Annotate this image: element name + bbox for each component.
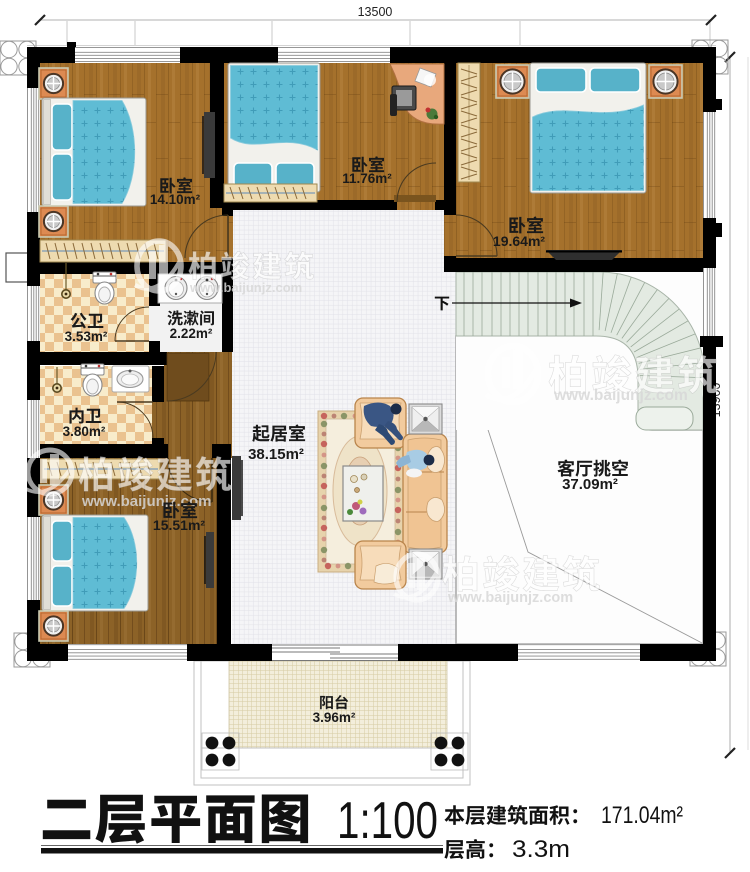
svg-text:3.53m²: 3.53m² [65, 329, 108, 344]
svg-text:11.76m²: 11.76m² [342, 171, 392, 186]
svg-text:www.baijunjz.com: www.baijunjz.com [553, 387, 688, 404]
svg-text:3.3m: 3.3m [512, 836, 570, 863]
svg-text:3.96m²: 3.96m² [313, 710, 356, 725]
svg-text:19.64m²: 19.64m² [493, 233, 545, 249]
svg-text:14.10m²: 14.10m² [150, 192, 201, 207]
svg-text:38.15m²: 38.15m² [248, 446, 304, 463]
svg-text:171.04m²: 171.04m² [601, 802, 683, 829]
svg-text:37.09m²: 37.09m² [562, 476, 618, 493]
svg-text:13500: 13500 [358, 5, 393, 19]
svg-text:www.baijunjz.com: www.baijunjz.com [447, 590, 573, 606]
svg-text:www.baijunjz.com: www.baijunjz.com [189, 280, 302, 295]
svg-text:3.80m²: 3.80m² [63, 424, 106, 439]
svg-text:1:100: 1:100 [337, 792, 438, 850]
svg-text:2.22m²: 2.22m² [170, 326, 213, 341]
svg-text:15.51m²: 15.51m² [153, 517, 205, 533]
